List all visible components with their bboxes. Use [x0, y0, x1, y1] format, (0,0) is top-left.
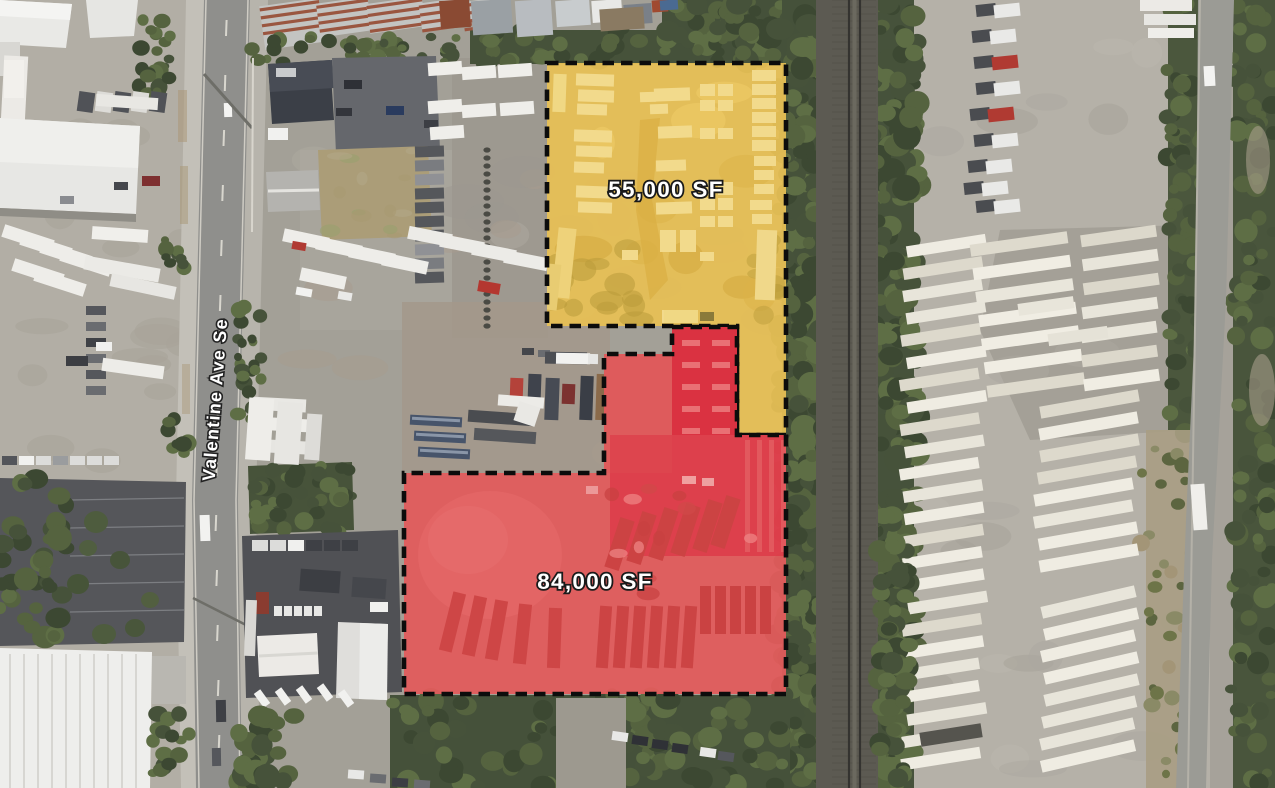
svg-text:84,000 SF: 84,000 SF — [537, 569, 653, 594]
svg-text:55,000 SF: 55,000 SF — [608, 177, 724, 202]
